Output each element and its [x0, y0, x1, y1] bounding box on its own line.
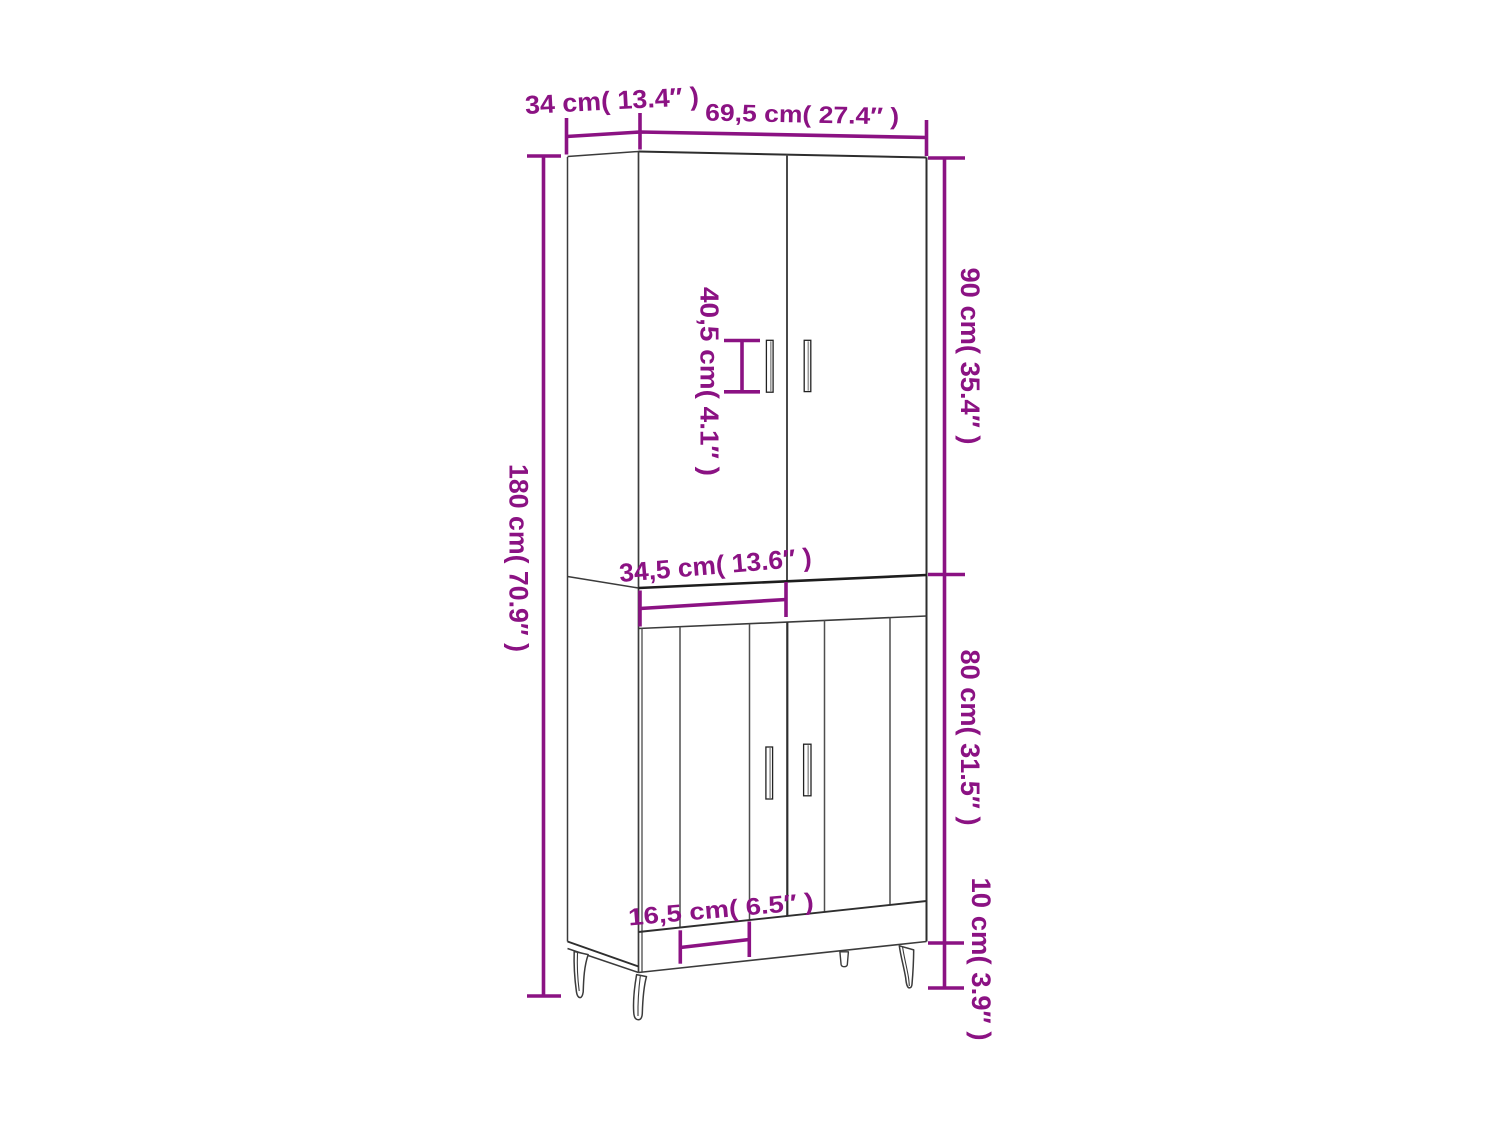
- svg-text:180 cm( 70.9″ ): 180 cm( 70.9″ ): [504, 464, 534, 652]
- svg-text:90 cm( 35.4″ ): 90 cm( 35.4″ ): [955, 268, 985, 445]
- svg-text:69,5 cm( 27.4″ ): 69,5 cm( 27.4″ ): [705, 100, 900, 131]
- svg-text:40,5 cm( 4.1″ ): 40,5 cm( 4.1″ ): [694, 287, 724, 476]
- svg-text:10 cm( 3.9″ ): 10 cm( 3.9″ ): [966, 878, 996, 1041]
- svg-text:80 cm( 31.5″ ): 80 cm( 31.5″ ): [955, 650, 985, 826]
